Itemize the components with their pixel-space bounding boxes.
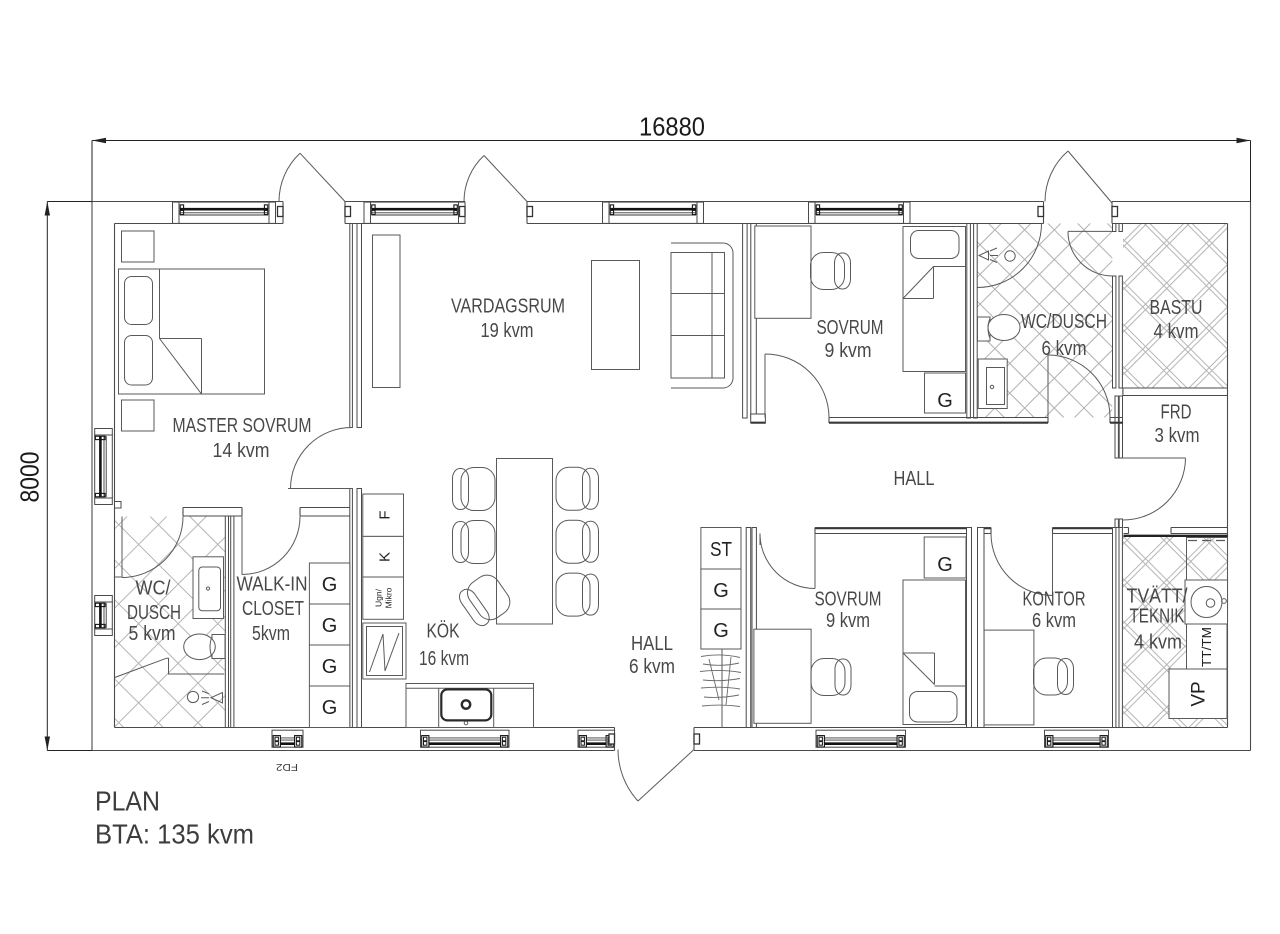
svg-text:3 kvm: 3 kvm	[1155, 425, 1200, 447]
svg-text:G: G	[713, 580, 729, 602]
svg-text:14 kvm: 14 kvm	[213, 440, 270, 462]
svg-text:ST: ST	[710, 539, 732, 561]
svg-text:Ugn/: Ugn/	[373, 588, 383, 607]
svg-text:6 kvm: 6 kvm	[629, 656, 675, 678]
svg-text:6 kvm: 6 kvm	[1032, 610, 1076, 632]
svg-text:G: G	[937, 390, 953, 412]
svg-text:16 kvm: 16 kvm	[419, 648, 469, 670]
svg-text:G: G	[322, 656, 338, 678]
svg-text:TVÄTT/: TVÄTT/	[1127, 586, 1188, 608]
svg-text:WC/DUSCH: WC/DUSCH	[1021, 311, 1107, 333]
svg-text:SOVRUM: SOVRUM	[817, 317, 884, 339]
svg-text:19 kvm: 19 kvm	[481, 320, 534, 342]
svg-text:FRD: FRD	[1161, 402, 1192, 424]
svg-text:G: G	[322, 697, 338, 719]
svg-text:MASTER SOVRUM: MASTER SOVRUM	[173, 415, 312, 437]
svg-text:G: G	[937, 554, 953, 576]
svg-text:HALL: HALL	[631, 633, 673, 655]
svg-text:TT/TM: TT/TM	[1200, 627, 1214, 667]
svg-text:G: G	[322, 574, 338, 596]
svg-text:VP: VP	[1189, 681, 1210, 706]
svg-text:G: G	[713, 620, 729, 642]
svg-text:PLAN: PLAN	[95, 786, 160, 817]
svg-text:BASTU: BASTU	[1150, 297, 1203, 319]
svg-text:16880: 16880	[639, 112, 705, 142]
svg-text:WC/: WC/	[136, 578, 171, 600]
svg-text:5 kvm: 5 kvm	[129, 623, 176, 645]
svg-text:5kvm: 5kvm	[252, 623, 290, 645]
svg-text:CLOSET: CLOSET	[242, 598, 304, 620]
svg-text:K: K	[376, 552, 393, 562]
svg-text:KONTOR: KONTOR	[1023, 589, 1086, 611]
svg-text:9 kvm: 9 kvm	[825, 340, 872, 362]
svg-text:FD2: FD2	[276, 761, 298, 773]
svg-text:8000: 8000	[15, 452, 45, 503]
svg-text:SOVRUM: SOVRUM	[815, 589, 882, 611]
svg-text:TEKNIK: TEKNIK	[1130, 606, 1185, 628]
svg-text:Mikro: Mikro	[383, 587, 393, 608]
svg-text:BTA: 135 kvm: BTA: 135 kvm	[95, 819, 254, 850]
svg-text:DUSCH: DUSCH	[127, 602, 181, 624]
svg-text:9 kvm: 9 kvm	[826, 610, 870, 632]
svg-text:VARDAGSRUM: VARDAGSRUM	[451, 296, 565, 318]
svg-text:KÖK: KÖK	[427, 621, 461, 643]
svg-text:WALK-IN: WALK-IN	[237, 574, 308, 596]
svg-text:G: G	[322, 615, 338, 637]
svg-text:6 kvm: 6 kvm	[1042, 338, 1087, 360]
svg-text:4 kvm: 4 kvm	[1134, 632, 1182, 654]
svg-text:4 kvm: 4 kvm	[1154, 321, 1199, 343]
svg-text:HALL: HALL	[894, 468, 935, 490]
svg-text:F: F	[376, 510, 393, 519]
